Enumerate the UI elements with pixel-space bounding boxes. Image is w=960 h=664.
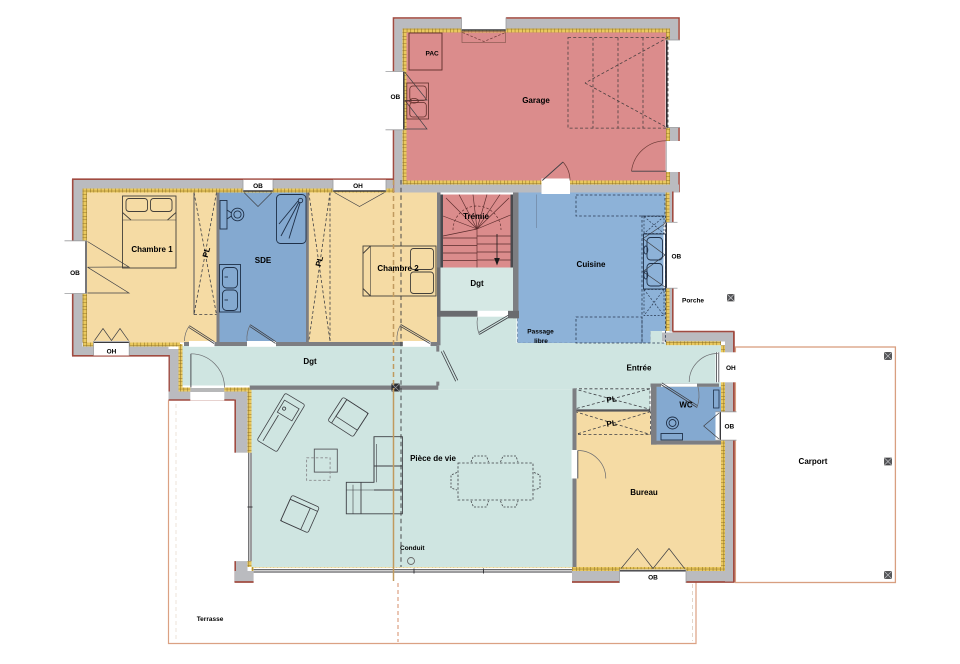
svg-text:OH: OH <box>353 183 363 190</box>
svg-text:Bureau: Bureau <box>630 488 658 497</box>
svg-text:PL: PL <box>606 418 617 428</box>
svg-text:OB: OB <box>672 254 682 261</box>
svg-text:Garage: Garage <box>522 96 550 105</box>
svg-text:OH: OH <box>726 365 736 372</box>
svg-text:Passage: Passage <box>527 329 554 336</box>
svg-text:Porche: Porche <box>682 298 704 305</box>
svg-text:Chambre 2: Chambre 2 <box>377 264 419 273</box>
svg-text:Carport: Carport <box>799 457 828 466</box>
svg-text:OB: OB <box>725 424 735 431</box>
svg-text:OB: OB <box>70 270 80 277</box>
svg-text:Cuisine: Cuisine <box>577 260 606 269</box>
svg-text:Terrasse: Terrasse <box>197 616 224 623</box>
svg-text:OB: OB <box>391 94 401 101</box>
svg-text:Pièce de vie: Pièce de vie <box>410 454 456 463</box>
svg-text:Dgt: Dgt <box>470 279 484 288</box>
svg-text:PL: PL <box>606 394 617 404</box>
svg-text:OB: OB <box>253 183 263 190</box>
svg-text:Conduit: Conduit <box>400 545 425 552</box>
svg-text:WC: WC <box>679 401 693 410</box>
svg-text:Chambre 1: Chambre 1 <box>131 245 173 254</box>
svg-text:PAC: PAC <box>426 51 440 58</box>
svg-text:Entrée: Entrée <box>627 364 652 373</box>
svg-text:OB: OB <box>648 575 658 582</box>
svg-text:SDE: SDE <box>255 256 272 265</box>
svg-text:Dgt: Dgt <box>303 357 317 366</box>
svg-text:OH: OH <box>107 349 117 356</box>
svg-text:libre: libre <box>534 338 548 345</box>
svg-text:Trémie: Trémie <box>463 212 489 221</box>
